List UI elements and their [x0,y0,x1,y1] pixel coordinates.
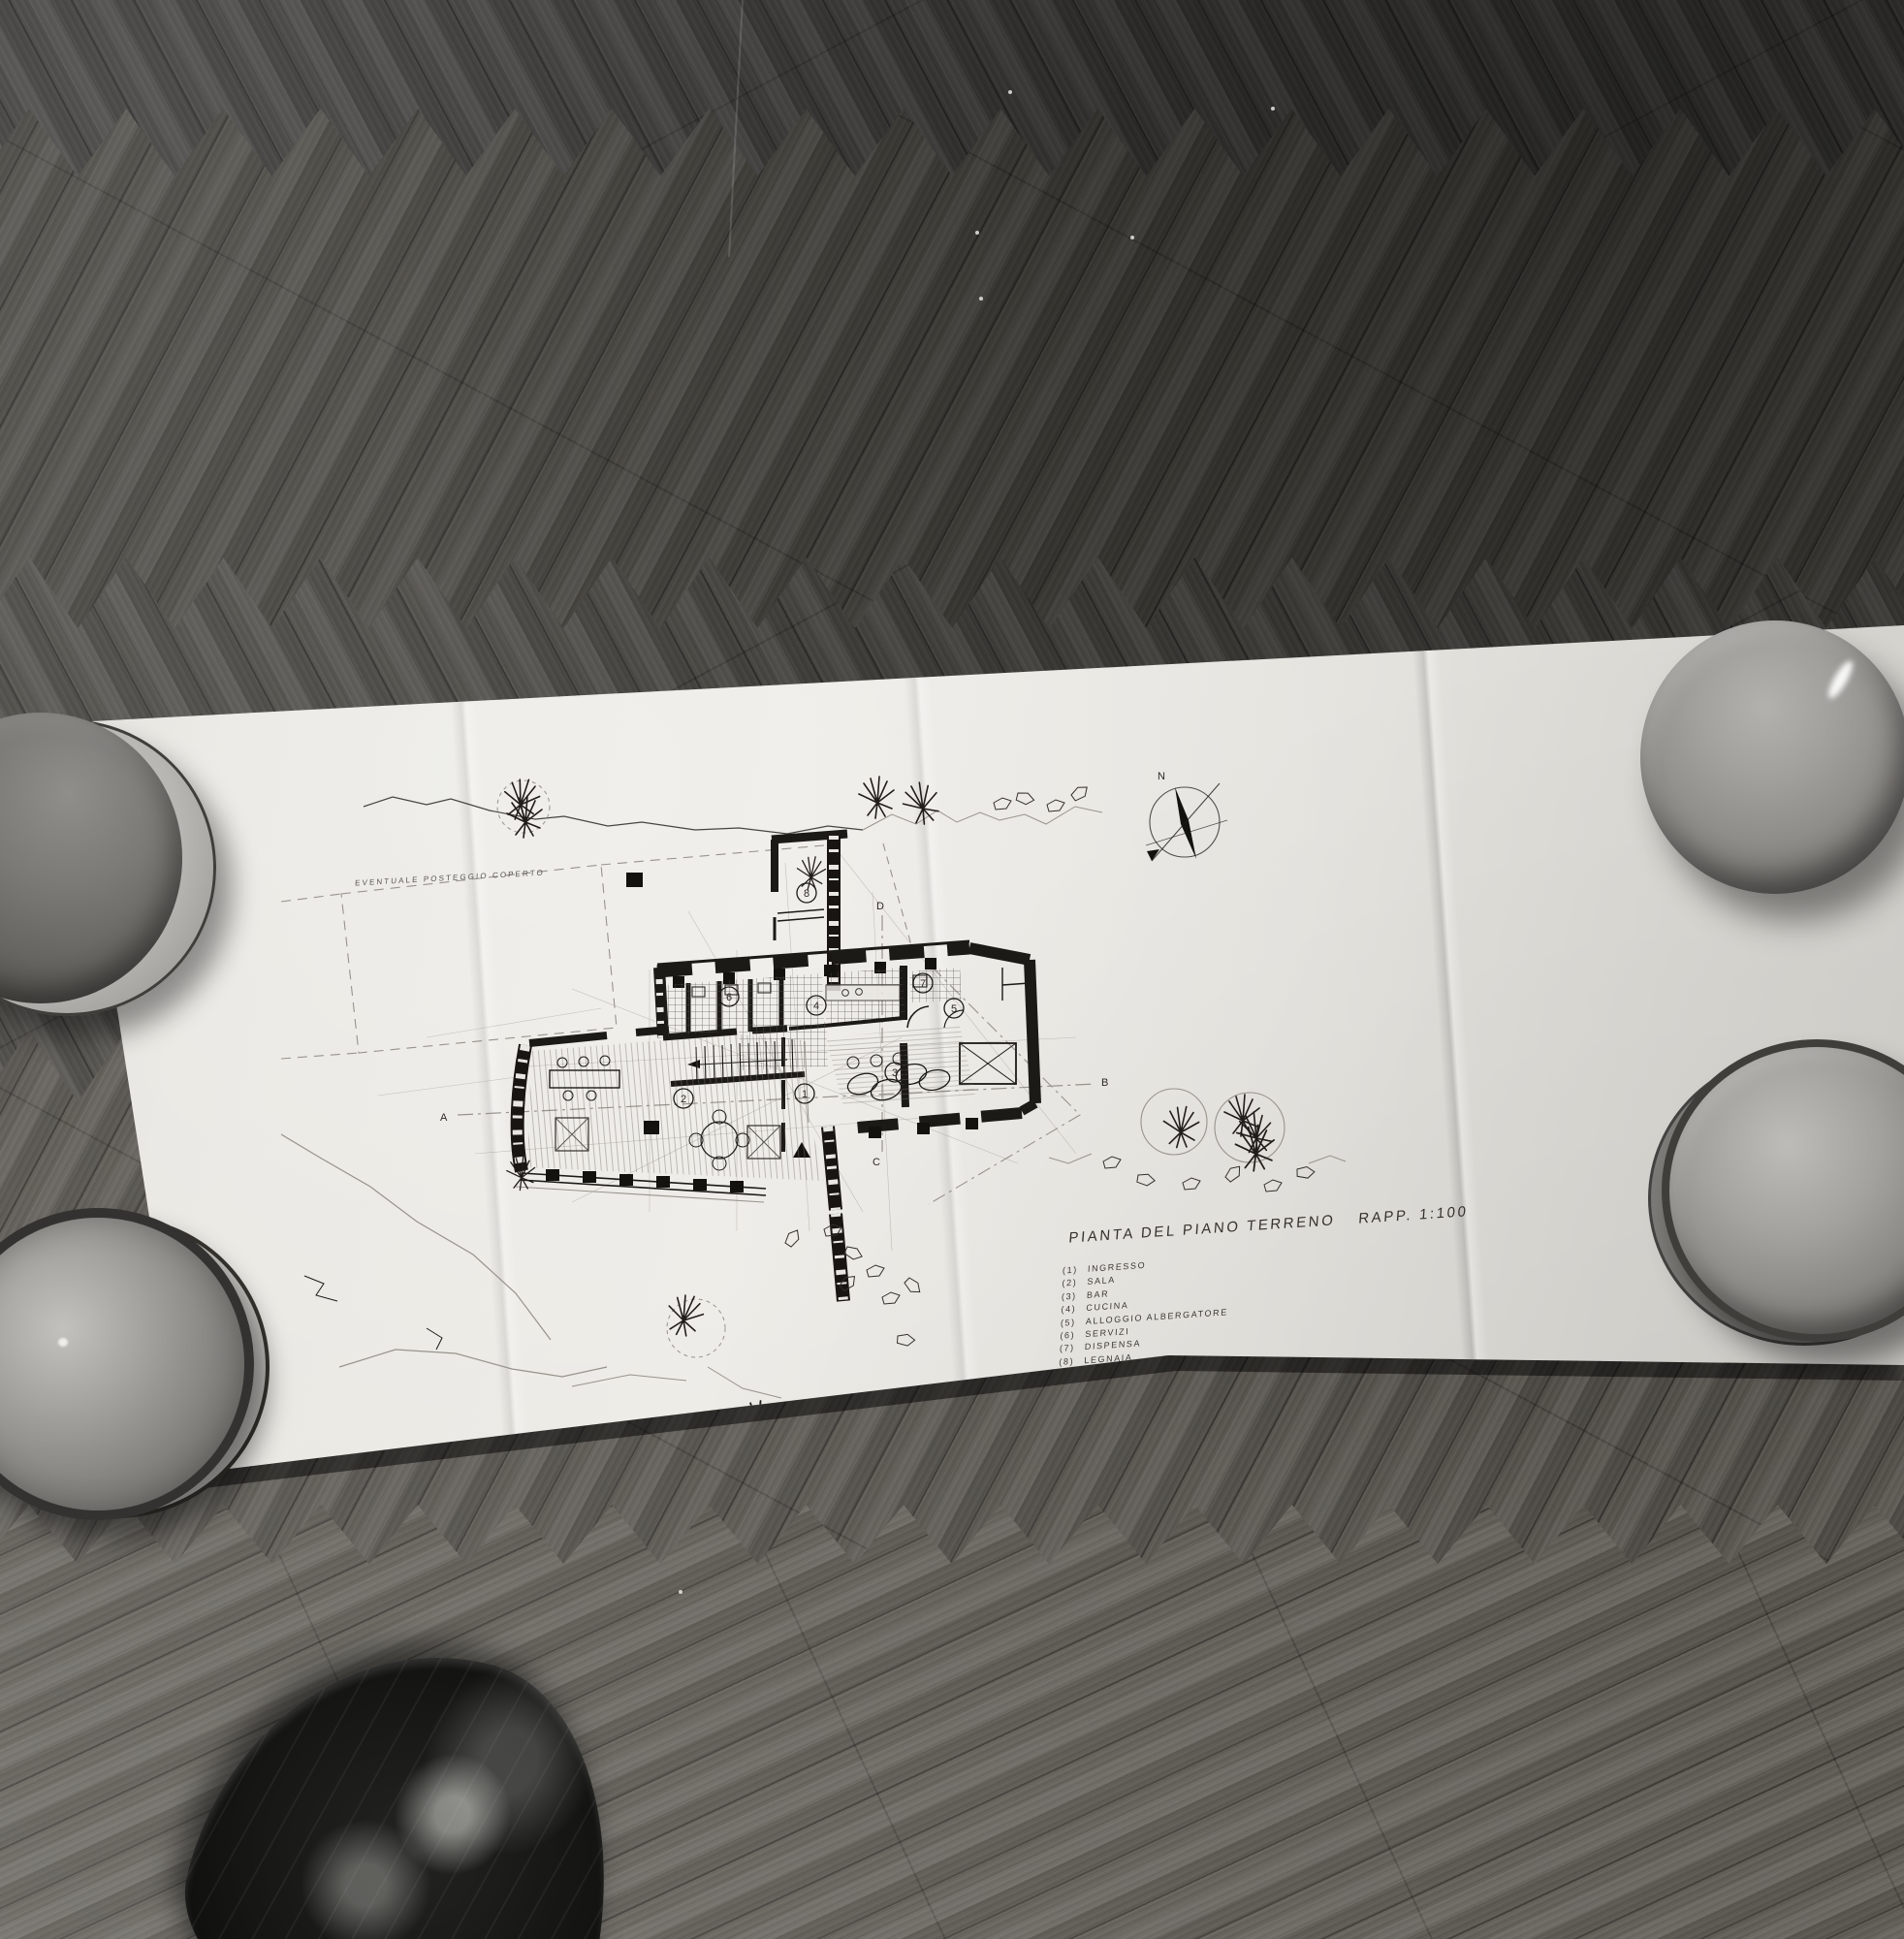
bar-area [826,1026,975,1107]
room-label-5: 5 [951,1003,957,1015]
legend-label: INGRESSO [1088,1260,1147,1274]
dust-speck [1008,90,1012,94]
bowl-highlight [58,1338,68,1347]
dust-speck [679,1590,682,1594]
room-label-2: 2 [681,1094,686,1105]
section-c-label: C [873,1157,880,1168]
compass-north-label: N [1158,771,1165,782]
plan-legend: (1)INGRESSO (2)SALA (3)BAR (4)CUCINA (5)… [1059,1254,1230,1369]
hall-sala [516,1030,824,1202]
terrain-sketch-bottom [281,1134,781,1425]
legend-label: CUCINA [1086,1300,1128,1313]
legend-label: SERVIZI [1085,1326,1129,1339]
section-d-label: D [876,901,884,912]
floor-plan: N A B C D [281,747,1425,1425]
room-label-6: 6 [726,992,732,1003]
dust-speck [1271,107,1275,111]
dust-speck [979,297,983,301]
room-label-7: 7 [920,978,926,990]
room-label-8: 8 [804,888,809,900]
legend-label: SALA [1087,1275,1116,1287]
section-a-label: A [440,1112,448,1124]
dust-speck [1130,236,1134,239]
section-b-label: B [1101,1077,1108,1089]
dust-speck [975,231,979,235]
legend-label: DISPENSA [1085,1339,1142,1352]
compass-needle [1175,787,1196,859]
room-label-4: 4 [813,1001,819,1012]
photo-scene: N A B C D [0,0,1904,1939]
tree-sketches [1049,1089,1346,1192]
room-label-1: 1 [802,1089,808,1100]
legend-label: BAR [1087,1288,1110,1300]
room-label-3: 3 [892,1067,898,1079]
compass-rose: N [1146,771,1227,861]
bowl-top-right [1640,620,1904,894]
